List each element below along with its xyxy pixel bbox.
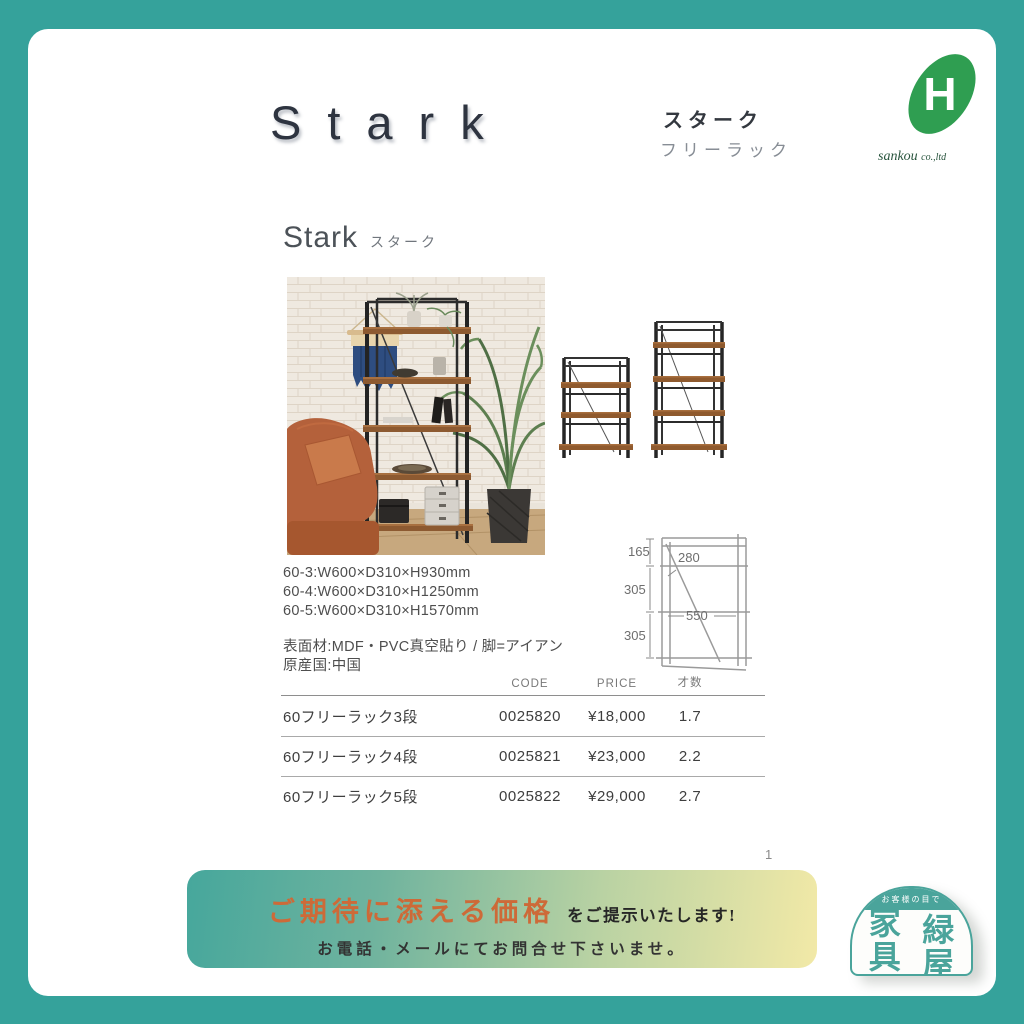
sankou-logo: H sankou co.,ltd bbox=[876, 47, 996, 165]
promo-banner: ご期待に添える価格 をご提示いたします! お電話・メールにてお問合せ下さいませ。 bbox=[187, 870, 817, 968]
row-name: 60フリーラック5段 bbox=[283, 777, 418, 816]
row-price: ¥23,000 bbox=[557, 737, 677, 776]
stamp-char-ya: 屋 bbox=[912, 947, 966, 976]
dimension-line-2: 60-4:W600×D310×H1250mm bbox=[283, 583, 563, 602]
dim-305-mid: 305 bbox=[624, 582, 646, 597]
dimension-line-1: 60-3:W600×D310×H930mm bbox=[283, 564, 563, 583]
stamp-char-ka: 家 bbox=[858, 906, 912, 940]
row-saisu: 2.7 bbox=[665, 777, 715, 816]
dim-165: 165 bbox=[628, 544, 650, 559]
stamp-char-midori: 緑 bbox=[912, 913, 966, 947]
page-number: 1 bbox=[765, 847, 772, 862]
product-image-3-tier bbox=[556, 346, 636, 467]
row-name: 60フリーラック4段 bbox=[283, 737, 418, 776]
table-row: 60フリーラック5段 0025822 ¥29,000 2.7 bbox=[281, 776, 765, 816]
material-line: 表面材:MDF・PVC真空貼り / 脚=アイアン bbox=[283, 638, 563, 657]
row-name: 60フリーラック3段 bbox=[283, 696, 418, 736]
spec-text-block: 60-3:W600×D310×H930mm 60-4:W600×D310×H12… bbox=[283, 564, 563, 676]
section-title-en: Stark bbox=[283, 221, 358, 254]
row-saisu: 2.2 bbox=[665, 737, 715, 776]
dimension-line-3: 60-5:W600×D310×H1570mm bbox=[283, 602, 563, 621]
row-price: ¥29,000 bbox=[557, 777, 677, 816]
dim-550: 550 bbox=[686, 608, 708, 623]
dim-280: 280 bbox=[678, 550, 700, 565]
header-price: PRICE bbox=[557, 675, 677, 695]
section-title: Starkスターク bbox=[283, 221, 438, 255]
promo-highlight: ご期待に添える価格 bbox=[268, 890, 555, 929]
brand-subtitle-japanese: フリーラック bbox=[660, 136, 792, 161]
promo-line-2: お電話・メールにてお問合せ下さいませ。 bbox=[187, 937, 817, 959]
promo-suffix: をご提示いたします! bbox=[567, 902, 736, 926]
product-image-4-tier bbox=[648, 312, 730, 467]
svg-text:H: H bbox=[923, 68, 956, 120]
brand-title: Stark bbox=[270, 95, 510, 150]
header-saisu: 才数 bbox=[665, 675, 715, 695]
kagu-midoriya-stamp: お客様の目で 家 緑 具 屋 bbox=[850, 886, 973, 976]
stamp-characters: 家 緑 具 屋 bbox=[858, 906, 965, 974]
stamp-char-gu: 具 bbox=[858, 940, 912, 974]
promo-line-1: ご期待に添える価格 をご提示いたします! bbox=[187, 890, 817, 929]
table-row: 60フリーラック4段 0025821 ¥23,000 2.2 bbox=[281, 736, 765, 776]
sankou-leaf-icon: H bbox=[876, 47, 996, 143]
section-title-jp: スターク bbox=[370, 234, 438, 250]
dimension-diagram: 165 305 305 280 550 bbox=[610, 524, 780, 684]
brand-title-japanese: スターク bbox=[663, 104, 763, 133]
table-row: 60フリーラック3段 0025820 ¥18,000 1.7 bbox=[281, 696, 765, 736]
dim-305-bottom: 305 bbox=[624, 628, 646, 643]
table-header-row: CODE PRICE 才数 bbox=[281, 675, 765, 696]
sankou-logo-text: sankou co.,ltd bbox=[878, 149, 946, 165]
origin-line: 原産国:中国 bbox=[283, 657, 563, 676]
lifestyle-photo bbox=[287, 277, 545, 555]
price-table: CODE PRICE 才数 60フリーラック3段 0025820 ¥18,000… bbox=[281, 675, 765, 816]
catalog-page: Stark スターク フリーラック H sankou co.,ltd Stark… bbox=[28, 29, 996, 996]
row-price: ¥18,000 bbox=[557, 696, 677, 736]
row-saisu: 1.7 bbox=[665, 696, 715, 736]
